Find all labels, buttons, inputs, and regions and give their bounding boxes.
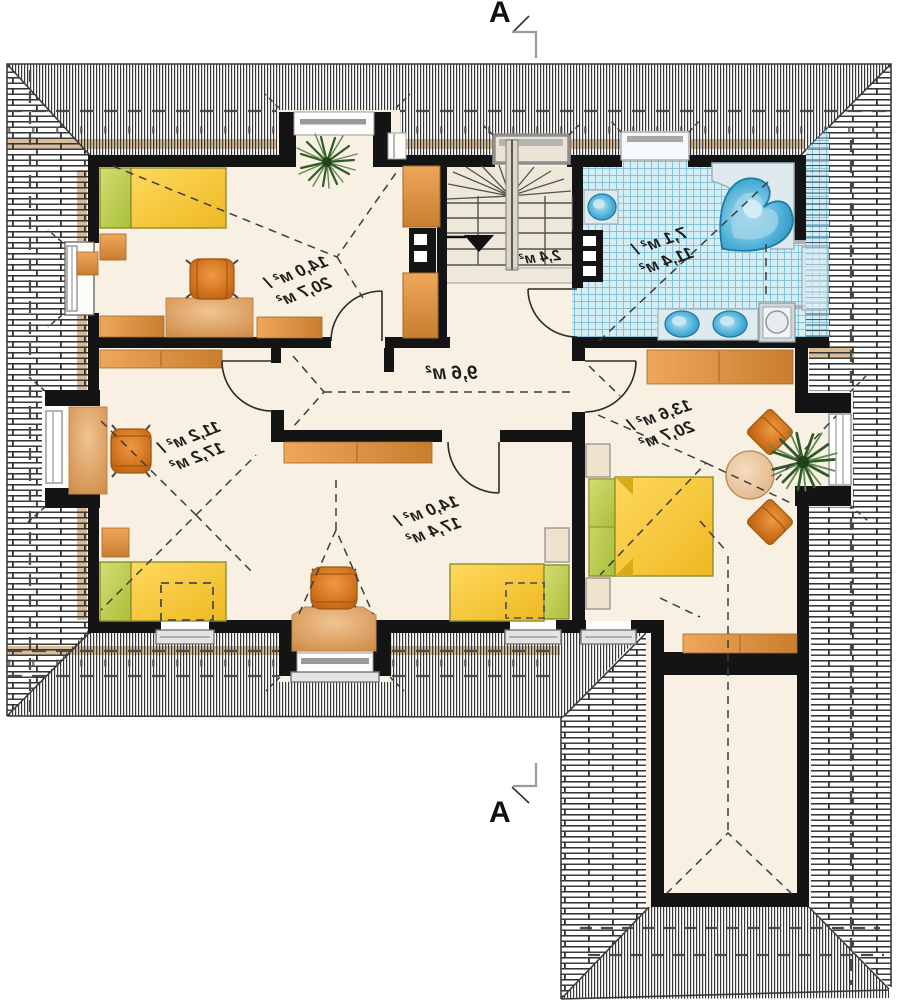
svg-text:9,6 м²: 9,6 м² — [425, 363, 478, 384]
svg-text:A: A — [489, 0, 511, 29]
svg-text:A: A — [489, 796, 511, 829]
